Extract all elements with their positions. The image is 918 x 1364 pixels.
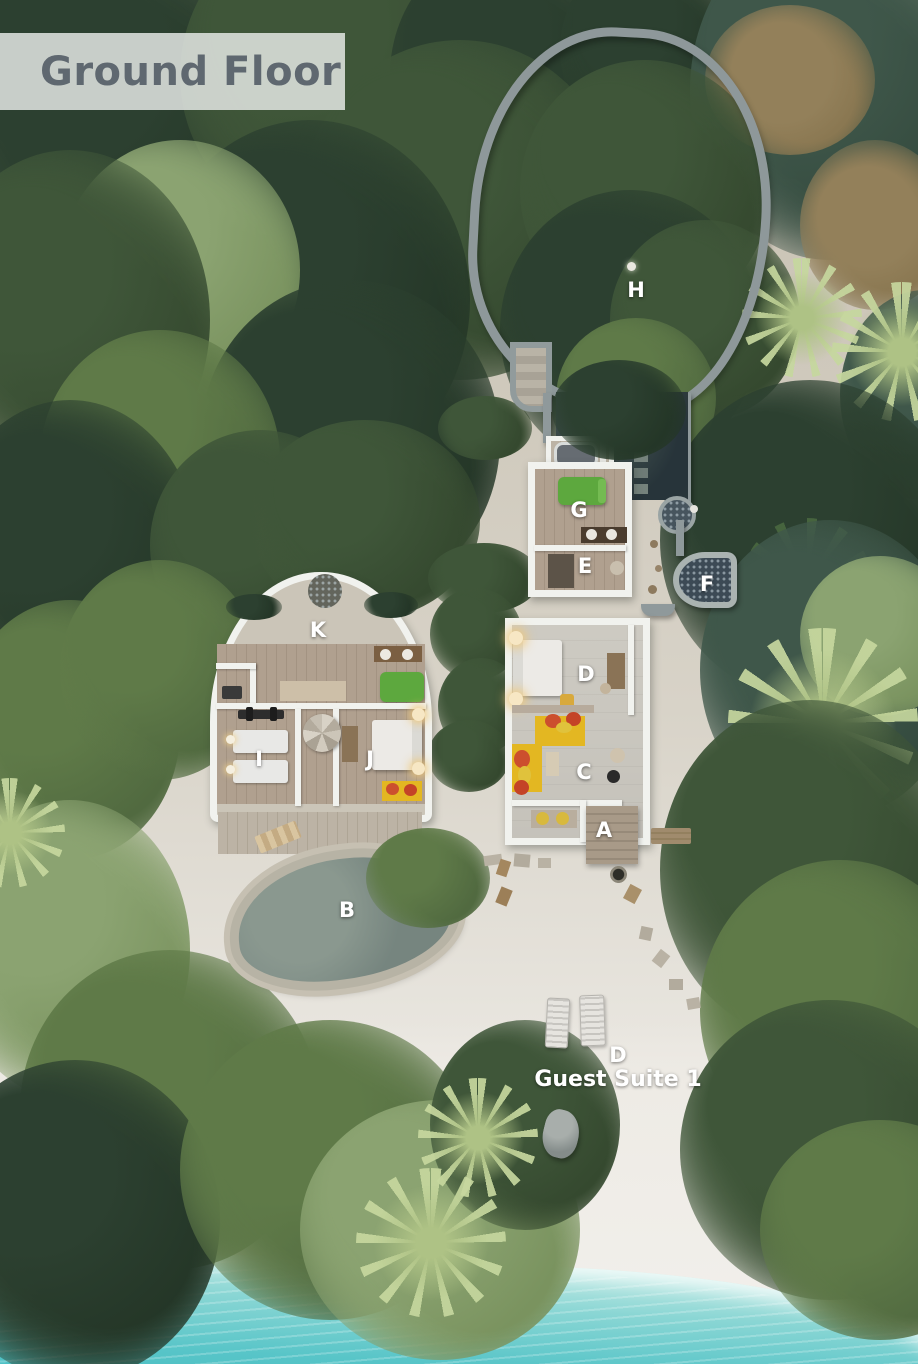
villa-room-wall [295, 709, 301, 806]
writing-table [280, 681, 346, 701]
fire-pit [610, 866, 627, 883]
bench-cushion-yellow [556, 812, 569, 825]
planter-shrub [226, 594, 282, 620]
jacuzzi-wall-stub [641, 604, 675, 616]
sofa-cushion-red [386, 783, 399, 795]
sofa-cushion-red [514, 780, 529, 795]
gym-rack [238, 710, 284, 719]
single-bed [233, 730, 288, 753]
jacuzzi-tub [673, 552, 737, 608]
caption-letter: D [534, 1044, 701, 1066]
poolside-tree [366, 828, 490, 928]
palm-tree [356, 1168, 506, 1318]
bedside-lamp [509, 692, 523, 706]
bed-pillows [513, 640, 523, 696]
hedge [428, 720, 510, 792]
bedside-lamp [412, 708, 425, 721]
closet-wall [216, 663, 256, 669]
dumbbell [270, 707, 277, 721]
sand-pebble [650, 540, 658, 548]
sofa-cushion-red [404, 784, 417, 796]
console-basin [402, 649, 413, 660]
spa-stool [610, 561, 624, 575]
entry-steps [586, 806, 638, 864]
round-chair [610, 748, 625, 763]
lamp-post [627, 262, 636, 271]
stepping-stone [538, 858, 551, 868]
plank-lounger [495, 886, 512, 906]
bedside-lamp [226, 765, 235, 774]
gravel-circle [308, 574, 342, 608]
pond-stepping-stone [634, 468, 648, 478]
bench-cushion-yellow [536, 812, 549, 825]
jacuzzi-wall-link [676, 520, 684, 556]
spa-partition-wall [534, 545, 626, 551]
desk-chair [600, 683, 611, 694]
sand-pebble [648, 585, 657, 594]
coffee-table-black [607, 770, 620, 783]
shower-head [690, 505, 698, 513]
title-bar: Ground Floor [0, 33, 345, 110]
stepping-stone [513, 853, 530, 867]
pond-tree [552, 360, 686, 460]
stepping-stone [669, 979, 683, 990]
bedside-lamp [509, 631, 523, 645]
bedside-lamp [412, 762, 425, 775]
side-table [546, 752, 559, 776]
spiral-staircase [303, 714, 341, 752]
page-title: Ground Floor [40, 49, 341, 95]
writing-desk [607, 653, 625, 689]
low-shelf [512, 705, 594, 713]
sofa-cushion-yellow [556, 722, 572, 733]
sand-pebble [655, 565, 662, 572]
stepping-stone [639, 926, 653, 941]
daybed-pillow [598, 479, 606, 503]
desk [342, 726, 358, 762]
stepping-stone [623, 884, 642, 904]
spa-counter [548, 554, 574, 588]
sun-lounger [579, 995, 606, 1047]
console-basin [380, 649, 391, 660]
single-bed [233, 760, 288, 783]
stepping-stone [686, 997, 701, 1010]
vanity-sink [606, 529, 617, 540]
caption-text: Guest Suite 1 [534, 1068, 701, 1091]
green-sofa [380, 672, 424, 702]
stepping-stone [652, 949, 671, 968]
outdoor-bench [651, 828, 691, 844]
floor-plan-canvas: HGEFKDCAIJB D Guest Suite 1 Ground Floor [0, 0, 918, 1364]
vanity-sink [586, 529, 597, 540]
bedside-lamp [226, 735, 235, 744]
pond-stepping-stone [634, 484, 648, 494]
suite-inner-wall [628, 625, 634, 715]
guest-suite-caption: D Guest Suite 1 [534, 1044, 701, 1091]
planter-shrub [364, 592, 418, 618]
luggage [222, 686, 242, 699]
dumbbell [246, 707, 253, 721]
sun-lounger [545, 997, 571, 1048]
